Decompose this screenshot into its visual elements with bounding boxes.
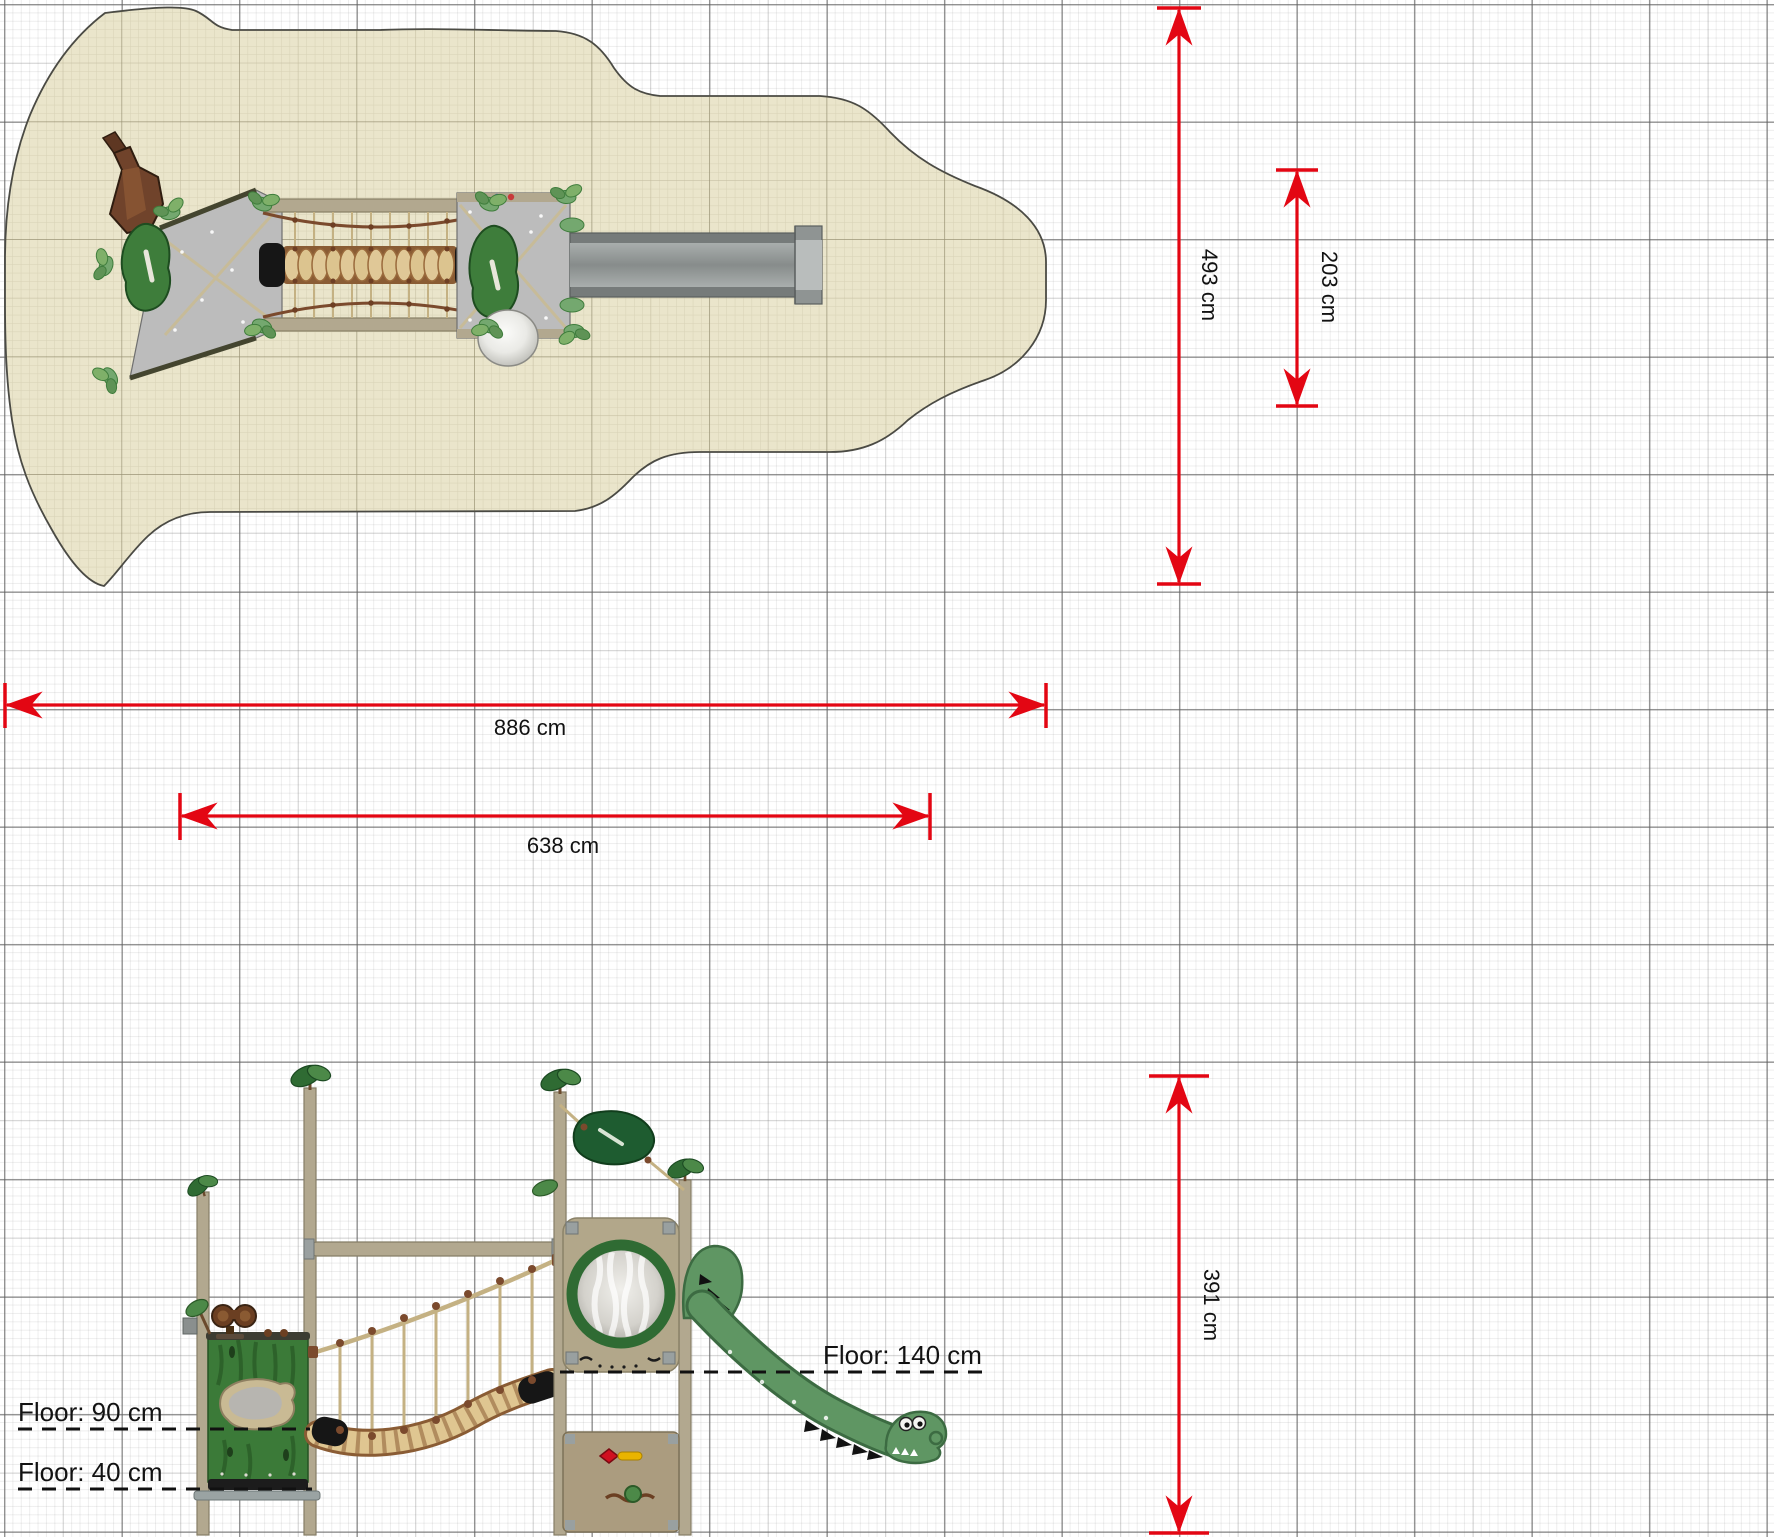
rope-bridge-side bbox=[308, 1254, 563, 1448]
label-floor-90: Floor: 90 cm bbox=[18, 1397, 163, 1427]
green-knob bbox=[625, 1486, 641, 1502]
dimension-493 bbox=[1157, 8, 1201, 584]
handle-red-top bbox=[508, 194, 514, 200]
technical-drawing: 886 cm 638 cm 493 cm 203 cm 391 cm bbox=[0, 0, 1774, 1537]
porthole-panel-side bbox=[563, 1218, 679, 1372]
dimension-203 bbox=[1276, 170, 1318, 406]
cross-beam-side bbox=[310, 1242, 560, 1256]
side-view: Floor: 140 cm Floor: 90 cm Floor: 40 cm bbox=[18, 1061, 985, 1535]
label-203: 203 cm bbox=[1317, 251, 1342, 323]
label-391: 391 cm bbox=[1199, 1269, 1224, 1341]
tower-left-side bbox=[181, 1061, 562, 1535]
climbing-panel-side bbox=[194, 1329, 320, 1500]
drawing-canvas: 886 cm 638 cm 493 cm 203 cm 391 cm bbox=[0, 0, 1774, 1537]
label-886: 886 cm bbox=[494, 715, 566, 740]
dome-skylight-top bbox=[478, 310, 538, 366]
top-view bbox=[5, 7, 1046, 586]
label-493: 493 cm bbox=[1197, 249, 1222, 321]
leaf-canopy-left-top bbox=[122, 224, 170, 311]
activity-panel-side bbox=[563, 1432, 679, 1532]
label-floor-40: Floor: 40 cm bbox=[18, 1457, 163, 1487]
label-floor-140: Floor: 140 cm bbox=[823, 1340, 982, 1370]
label-638: 638 cm bbox=[527, 833, 599, 858]
tower-right-side bbox=[530, 1065, 705, 1535]
